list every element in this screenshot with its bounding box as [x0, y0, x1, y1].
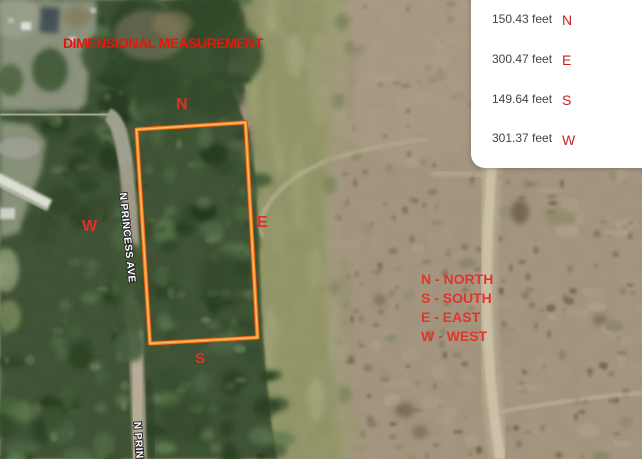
svg-text:E: E [562, 52, 571, 68]
svg-text:DIMENSIONAL MEASUREMENT: DIMENSIONAL MEASUREMENT [63, 35, 264, 51]
svg-text:W - WEST: W - WEST [421, 328, 488, 344]
svg-text:300.47 feet: 300.47 feet [492, 52, 553, 66]
svg-text:S - SOUTH: S - SOUTH [421, 290, 492, 306]
svg-text:149.64 feet: 149.64 feet [492, 92, 553, 106]
svg-text:S: S [195, 350, 205, 367]
svg-text:E: E [257, 214, 268, 231]
svg-text:S: S [562, 92, 571, 108]
svg-text:150.43 feet: 150.43 feet [492, 12, 553, 26]
svg-text:N: N [562, 12, 572, 28]
svg-text:N - NORTH: N - NORTH [421, 271, 493, 287]
svg-text:N: N [176, 96, 188, 113]
svg-text:W: W [82, 218, 98, 235]
svg-text:W: W [562, 132, 576, 148]
svg-text:301.37 feet: 301.37 feet [492, 131, 553, 145]
svg-text:E - EAST: E - EAST [421, 309, 481, 325]
